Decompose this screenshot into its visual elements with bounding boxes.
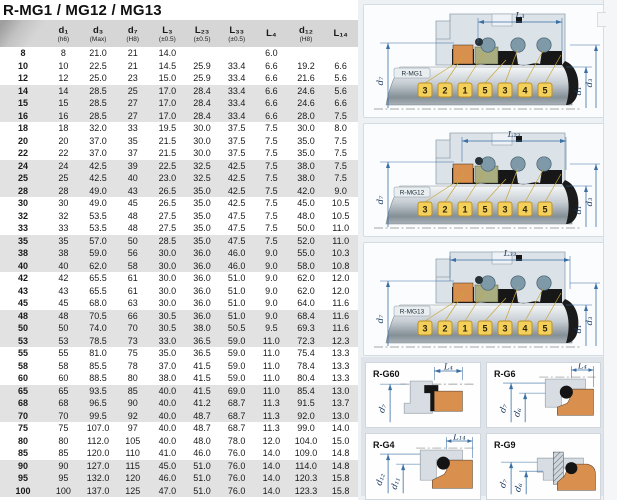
dim-value-cell: 120.0 bbox=[81, 447, 116, 460]
svg-text:d₇: d₇ bbox=[376, 76, 386, 85]
row-size-cell: 28 bbox=[0, 185, 46, 198]
catalog-page: R-MG1 / MG12 / MG13 d₁(h6)d₃(Max)d₇(H8)L… bbox=[0, 0, 617, 500]
dim-value-cell: 43 bbox=[46, 285, 81, 298]
dim-value-cell: 7.5 bbox=[323, 110, 358, 123]
svg-text:2: 2 bbox=[442, 86, 447, 96]
dim-value-cell: 30.0 bbox=[150, 247, 185, 260]
dim-value-cell: 7.5 bbox=[254, 185, 289, 198]
svg-text:L₄: L₄ bbox=[443, 363, 454, 373]
dim-value-cell: 40.0 bbox=[150, 385, 185, 398]
dim-value-cell: 38.0 bbox=[289, 160, 324, 173]
dim-value-cell: 62.0 bbox=[289, 285, 324, 298]
dim-value-cell: 17.0 bbox=[150, 110, 185, 123]
dim-value-cell: 11.0 bbox=[254, 385, 289, 398]
dim-value-cell: 33.4 bbox=[219, 110, 254, 123]
svg-text:d₇: d₇ bbox=[498, 478, 510, 490]
dim-value-cell: 47.5 bbox=[219, 222, 254, 235]
dim-value-cell: 68.4 bbox=[289, 310, 324, 323]
svg-text:5: 5 bbox=[482, 205, 487, 215]
seat-drawing-rg4: R-G4 L₁₄ bbox=[366, 434, 480, 498]
dim-value-cell: 51.0 bbox=[185, 472, 220, 485]
table-row: 353557.05028.535.047.57.552.011.0 bbox=[0, 235, 358, 248]
table-row: 323253.54827.535.047.57.548.010.5 bbox=[0, 210, 358, 223]
callout-badge: 5 bbox=[478, 83, 492, 97]
dim-value-cell: 30.0 bbox=[150, 285, 185, 298]
table-row: 424265.56130.036.051.09.062.012.0 bbox=[0, 272, 358, 285]
dim-value-cell: 80 bbox=[46, 435, 81, 448]
table-row: 100100137.012547.051.076.014.0123.315.8 bbox=[0, 485, 358, 498]
svg-text:4: 4 bbox=[522, 205, 527, 215]
dim-value-cell: 21.5 bbox=[150, 147, 185, 160]
model-label: R-MG13 bbox=[400, 309, 425, 316]
dim-value-cell: 10.8 bbox=[323, 260, 358, 273]
dim-value-cell: 26.5 bbox=[150, 197, 185, 210]
dim-value-cell: 26.5 bbox=[150, 185, 185, 198]
dim-value-cell: 33.4 bbox=[219, 97, 254, 110]
table-row: 242442.53922.532.542.57.538.07.5 bbox=[0, 160, 358, 173]
dim-value-cell: 47.5 bbox=[219, 235, 254, 248]
callout-badge: 1 bbox=[458, 321, 472, 335]
dim-value-cell: 57.0 bbox=[81, 235, 116, 248]
svg-text:L₁₄: L₁₄ bbox=[452, 434, 466, 443]
callout-badge: 5 bbox=[538, 321, 552, 335]
row-size-cell: 15 bbox=[0, 97, 46, 110]
dim-value-cell: 27 bbox=[115, 110, 150, 123]
dim-value-cell: 28.5 bbox=[81, 85, 116, 98]
dim-value-cell: 33 bbox=[115, 122, 150, 135]
dim-value-cell: 36.5 bbox=[185, 347, 220, 360]
dim-value-cell: 53.5 bbox=[81, 222, 116, 235]
dim-value-cell: 78.4 bbox=[289, 360, 324, 373]
o-ring bbox=[565, 462, 577, 474]
spring-end bbox=[475, 157, 483, 165]
dim-value-cell: 51.0 bbox=[219, 285, 254, 298]
dim-value-cell: 72.3 bbox=[289, 335, 324, 348]
seal-diagram-r-mg13: R-MG13 L₃₃ d₇ d₁ bbox=[363, 242, 605, 356]
callout-badge: 5 bbox=[538, 202, 552, 216]
dim-value-cell: 74.0 bbox=[81, 322, 116, 335]
dim-value-cell: 85 bbox=[115, 385, 150, 398]
dim-value-cell: 25 bbox=[46, 172, 81, 185]
svg-text:5: 5 bbox=[542, 205, 547, 215]
dim-value-cell: 6.6 bbox=[254, 72, 289, 85]
dimension-table: d₁(h6)d₃(Max)d₇(H8)L₃(±0.5)L₂₃(±0.5)L₃₃(… bbox=[0, 20, 358, 497]
dim-value-cell: 58 bbox=[46, 360, 81, 373]
dim-value-cell: 52.0 bbox=[289, 235, 324, 248]
callout-badge: 4 bbox=[518, 321, 532, 335]
dim-value-cell: 64.0 bbox=[289, 297, 324, 310]
dim-value-cell: 35.0 bbox=[289, 135, 324, 148]
seat-label: R-G6 bbox=[494, 369, 516, 379]
dim-value-cell: 48 bbox=[46, 310, 81, 323]
svg-text:d₁₂: d₁₂ bbox=[375, 472, 388, 487]
dim-value-cell: 37.0 bbox=[81, 135, 116, 148]
dim-value-cell: 9.0 bbox=[254, 247, 289, 260]
dim-value-cell: 36.5 bbox=[185, 335, 220, 348]
dim-value-cell: 7.5 bbox=[254, 197, 289, 210]
row-size-cell: 95 bbox=[0, 472, 46, 485]
dim-value-cell: 48 bbox=[115, 210, 150, 223]
dim-value-cell: 92.0 bbox=[289, 410, 324, 423]
seat-panel-rg9: R-G9 d₇ d₆ bbox=[486, 433, 602, 499]
dim-value-cell: 11.0 bbox=[323, 222, 358, 235]
dim-value-cell: 28.0 bbox=[289, 110, 324, 123]
dim-value-cell: 30.0 bbox=[185, 122, 220, 135]
dim-value-cell: 40 bbox=[115, 172, 150, 185]
dim-value-cell: 7.5 bbox=[254, 160, 289, 173]
callout-badge: 3 bbox=[498, 202, 512, 216]
dim-value-cell: 7.5 bbox=[254, 210, 289, 223]
row-size-cell: 35 bbox=[0, 235, 46, 248]
dim-value-cell: 7.5 bbox=[323, 172, 358, 185]
dim-value-cell: 41.2 bbox=[185, 397, 220, 410]
dim-value-cell: 37 bbox=[115, 147, 150, 160]
seal-face-carbon bbox=[453, 45, 473, 64]
dim-value-cell: 18 bbox=[46, 122, 81, 135]
table-row: 656593.58540.041.569.011.085.413.0 bbox=[0, 385, 358, 398]
dim-value-cell: 9.0 bbox=[323, 185, 358, 198]
table-row: 121225.02315.025.933.46.621.65.6 bbox=[0, 72, 358, 85]
dim-value-cell: 90 bbox=[46, 460, 81, 473]
callout-badge: 3 bbox=[418, 83, 432, 97]
dim-value-cell: 23 bbox=[115, 72, 150, 85]
dim-value-cell: 11.0 bbox=[323, 235, 358, 248]
dim-value-cell: 51.0 bbox=[185, 485, 220, 498]
dim-value-cell: 28.4 bbox=[185, 97, 220, 110]
dim-value-cell: 59.0 bbox=[219, 360, 254, 373]
row-size-cell: 16 bbox=[0, 110, 46, 123]
dim-value-cell: 25.9 bbox=[185, 72, 220, 85]
svg-text:d₁₁: d₁₁ bbox=[390, 476, 403, 491]
dim-value-cell: 11.6 bbox=[323, 310, 358, 323]
dim-value-cell: 33.4 bbox=[219, 72, 254, 85]
dim-value-cell: 36.0 bbox=[185, 247, 220, 260]
dim-value-cell: 15 bbox=[46, 97, 81, 110]
dim-value-cell: 5.6 bbox=[323, 72, 358, 85]
dim-value-cell: 15.8 bbox=[323, 485, 358, 498]
header-cell: L₁₄ bbox=[323, 20, 358, 47]
dim-value-cell: 14 bbox=[46, 85, 81, 98]
dim-value-cell: 32.0 bbox=[81, 122, 116, 135]
dim-value-cell: 114.0 bbox=[289, 460, 324, 473]
svg-text:d₃: d₃ bbox=[585, 197, 595, 206]
dim-value-cell: 35.0 bbox=[185, 197, 220, 210]
dim-value-cell: 24 bbox=[46, 160, 81, 173]
header-cell: L₄ bbox=[254, 20, 289, 47]
dim-value-cell: 30.0 bbox=[289, 122, 324, 135]
row-size-cell: 80 bbox=[0, 435, 46, 448]
dim-value-cell: 6.6 bbox=[254, 97, 289, 110]
dim-value-cell: 33.4 bbox=[219, 85, 254, 98]
dim-value-cell: 125 bbox=[115, 485, 150, 498]
spring-coil bbox=[511, 276, 525, 290]
dim-d11: d₁₁ bbox=[390, 464, 421, 493]
table-row: 555581.07535.036.559.011.075.413.3 bbox=[0, 347, 358, 360]
table-row: 8080112.010540.048.078.012.0104.015.0 bbox=[0, 435, 358, 448]
dim-value-cell: 38 bbox=[46, 247, 81, 260]
table-row: 585885.57837.041.559.011.078.413.3 bbox=[0, 360, 358, 373]
dim-value-cell: 14.0 bbox=[150, 47, 185, 60]
row-size-cell: 85 bbox=[0, 447, 46, 460]
dim-value-cell: 14.8 bbox=[323, 460, 358, 473]
model-label: R-MG12 bbox=[400, 190, 425, 197]
dim-value-cell: 39 bbox=[115, 160, 150, 173]
dim-value-cell: 68.0 bbox=[81, 297, 116, 310]
dim-value-cell: 42.0 bbox=[289, 185, 324, 198]
dim-value-cell: 17.0 bbox=[150, 97, 185, 110]
dim-value-cell: 20 bbox=[46, 135, 81, 148]
svg-text:5: 5 bbox=[542, 324, 547, 334]
dim-value-cell: 47.0 bbox=[150, 485, 185, 498]
dim-value-cell: 30.0 bbox=[185, 147, 220, 160]
row-size-cell: 30 bbox=[0, 197, 46, 210]
dim-value-cell: 35.0 bbox=[289, 147, 324, 160]
model-label: R-MG1 bbox=[402, 71, 423, 78]
dim-value-cell: 42.5 bbox=[219, 185, 254, 198]
dim-value-cell: 6.6 bbox=[254, 60, 289, 73]
table-row: 222237.03721.530.037.57.535.07.5 bbox=[0, 147, 358, 160]
dim-value-cell: 7.5 bbox=[254, 135, 289, 148]
seal-face-carbon bbox=[453, 283, 473, 302]
dim-value-cell: 46.0 bbox=[219, 247, 254, 260]
dim-value-cell: 50.5 bbox=[219, 322, 254, 335]
dim-value-cell: 92 bbox=[115, 410, 150, 423]
dim-value-cell: 28.4 bbox=[185, 110, 220, 123]
dim-value-cell: 53.5 bbox=[81, 210, 116, 223]
spring-end bbox=[475, 276, 483, 284]
dim-value-cell: 24.6 bbox=[289, 97, 324, 110]
dim-value-cell: 120.3 bbox=[289, 472, 324, 485]
dim-value-cell: 22.5 bbox=[81, 60, 116, 73]
dim-value-cell: 36.0 bbox=[185, 297, 220, 310]
svg-text:d₇: d₇ bbox=[376, 195, 386, 204]
dim-value-cell: 42.5 bbox=[219, 197, 254, 210]
seat-variants-grid: R-G60 L₄ bbox=[361, 357, 605, 496]
dim-value-cell: 30.0 bbox=[150, 272, 185, 285]
dim-value-cell: 30.5 bbox=[150, 310, 185, 323]
dim-value-cell: 55 bbox=[46, 347, 81, 360]
dim-value-cell: 7.5 bbox=[254, 122, 289, 135]
header-cell: d₃(Max) bbox=[81, 20, 116, 47]
dim-value-cell: 19.2 bbox=[289, 60, 324, 73]
dim-value-cell: 13.7 bbox=[323, 397, 358, 410]
dim-value-cell: 10 bbox=[46, 60, 81, 73]
dim-value-cell: 81.0 bbox=[81, 347, 116, 360]
spring-coil bbox=[511, 157, 525, 171]
dim-value-cell: 112.0 bbox=[81, 435, 116, 448]
dim-value-cell: 127.0 bbox=[81, 460, 116, 473]
row-size-cell: 68 bbox=[0, 397, 46, 410]
dim-value-cell: 100 bbox=[46, 485, 81, 498]
dim-value-cell: 25.9 bbox=[185, 60, 220, 73]
svg-text:L₄: L₄ bbox=[576, 363, 587, 372]
table-row: 8821.02114.06.0 bbox=[0, 47, 358, 60]
dim-value-cell: 10.5 bbox=[323, 210, 358, 223]
dim-value-cell: 63 bbox=[115, 297, 150, 310]
header-corner-cell bbox=[0, 20, 46, 47]
dim-value-cell: 30.0 bbox=[150, 260, 185, 273]
row-size-cell: 48 bbox=[0, 310, 46, 323]
dim-value-cell: 120 bbox=[115, 472, 150, 485]
dim-value-cell: 41.5 bbox=[185, 360, 220, 373]
dim-value-cell: 40.0 bbox=[150, 410, 185, 423]
dim-value-cell: 76.0 bbox=[219, 472, 254, 485]
dim-value-cell: 48 bbox=[115, 222, 150, 235]
row-size-cell: 43 bbox=[0, 285, 46, 298]
dim-value-cell: 24.6 bbox=[289, 85, 324, 98]
dim-value-cell: 12.0 bbox=[323, 272, 358, 285]
dim-value-cell: 37.0 bbox=[81, 147, 116, 160]
dim-value-cell: 6.6 bbox=[323, 97, 358, 110]
dim-value-cell: 46.0 bbox=[219, 260, 254, 273]
dim-value-cell: 7.5 bbox=[254, 222, 289, 235]
dim-value-cell: 42.5 bbox=[81, 160, 116, 173]
dim-value-cell: 60 bbox=[46, 372, 81, 385]
dim-value-cell: 40 bbox=[46, 260, 81, 273]
dim-value-cell: 5.6 bbox=[323, 85, 358, 98]
table-row: 383859.05630.036.046.09.055.010.3 bbox=[0, 247, 358, 260]
dim-value-cell: 27.5 bbox=[150, 222, 185, 235]
svg-text:1: 1 bbox=[462, 205, 467, 215]
table-row: 181832.03319.530.037.57.530.08.0 bbox=[0, 122, 358, 135]
row-size-cell: 45 bbox=[0, 297, 46, 310]
dim-value-cell: 42.5 bbox=[81, 172, 116, 185]
dim-value-cell: 59.0 bbox=[219, 335, 254, 348]
dim-value-cell: 42 bbox=[46, 272, 81, 285]
dim-value-cell: 76.0 bbox=[219, 460, 254, 473]
spring-coil bbox=[537, 276, 551, 290]
spring-coil bbox=[481, 276, 495, 290]
dim-value-cell: 10.3 bbox=[323, 247, 358, 260]
callout-badge: 5 bbox=[478, 321, 492, 335]
dim-value-cell: 35 bbox=[46, 235, 81, 248]
row-size-cell: 60 bbox=[0, 372, 46, 385]
dim-value-cell: 40.0 bbox=[150, 422, 185, 435]
callout-badge: 3 bbox=[498, 83, 512, 97]
dim-value-cell: 35 bbox=[115, 135, 150, 148]
row-size-cell: 40 bbox=[0, 260, 46, 273]
dim-value-cell: 14.0 bbox=[254, 447, 289, 460]
table-row: 404062.05830.036.046.09.058.010.8 bbox=[0, 260, 358, 273]
header-row: d₁(h6)d₃(Max)d₇(H8)L₃(±0.5)L₂₃(±0.5)L₃₃(… bbox=[0, 20, 358, 47]
dim-value-cell: 132.0 bbox=[81, 472, 116, 485]
dim-value-cell: 105 bbox=[115, 435, 150, 448]
dim-value-cell: 13.0 bbox=[323, 410, 358, 423]
dim-value-cell: 15.0 bbox=[323, 435, 358, 448]
row-size-cell: 12 bbox=[0, 72, 46, 85]
dimension-table-body: 8821.02114.06.0101022.52114.525.933.46.6… bbox=[0, 47, 358, 497]
dim-value-cell: 28.5 bbox=[81, 97, 116, 110]
dim-value-cell: 40.0 bbox=[150, 435, 185, 448]
dim-value-cell: 25.0 bbox=[81, 72, 116, 85]
row-size-cell: 75 bbox=[0, 422, 46, 435]
dim-d7: d₇ bbox=[377, 384, 406, 422]
seat-drawing-rg9: R-G9 d₇ d₆ bbox=[487, 434, 601, 498]
dim-value-cell: 21.6 bbox=[289, 72, 324, 85]
dim-value-cell: 56 bbox=[115, 247, 150, 260]
row-size-cell: 38 bbox=[0, 247, 46, 260]
dim-value-cell: 69.3 bbox=[289, 322, 324, 335]
dim-value-cell: 11.0 bbox=[254, 360, 289, 373]
dim-value-cell: 21.5 bbox=[150, 135, 185, 148]
dim-value-cell: 10.5 bbox=[323, 197, 358, 210]
dim-value-cell: 75 bbox=[46, 422, 81, 435]
dim-value-cell: 21 bbox=[115, 60, 150, 73]
dim-value-cell: 50 bbox=[115, 235, 150, 248]
dim-value-cell: 69.0 bbox=[219, 385, 254, 398]
dim-value-cell: 11.3 bbox=[254, 397, 289, 410]
dim-value-cell: 68.7 bbox=[219, 397, 254, 410]
seal-diagrams: R-MG1 L₃ d₇ d₁ bbox=[363, 4, 605, 356]
dim-value-cell: 61 bbox=[115, 285, 150, 298]
dim-value-cell: 115 bbox=[115, 460, 150, 473]
dim-value-cell: 65 bbox=[46, 385, 81, 398]
callout-badge: 3 bbox=[418, 202, 432, 216]
dim-value-cell: 61 bbox=[115, 272, 150, 285]
dim-value-cell: 85 bbox=[46, 447, 81, 460]
table-row: 303049.04526.535.042.57.545.010.5 bbox=[0, 197, 358, 210]
dim-value-cell: 6.6 bbox=[254, 110, 289, 123]
row-size-cell: 20 bbox=[0, 135, 46, 148]
svg-text:3: 3 bbox=[422, 324, 427, 334]
row-size-cell: 100 bbox=[0, 485, 46, 498]
dim-value-cell: 7.5 bbox=[254, 235, 289, 248]
dim-value-cell: 70 bbox=[115, 322, 150, 335]
dim-value-cell: 43 bbox=[115, 185, 150, 198]
row-size-cell: 32 bbox=[0, 210, 46, 223]
dim-value-cell: 13.0 bbox=[323, 385, 358, 398]
dim-value-cell: 45.0 bbox=[289, 197, 324, 210]
dim-value-cell: 62.0 bbox=[289, 272, 324, 285]
seat-panel-rg6: R-G6 L₄ bbox=[486, 362, 602, 428]
dim-value-cell: 6.0 bbox=[254, 47, 289, 60]
dim-value-cell: 91.5 bbox=[289, 397, 324, 410]
row-size-cell: 18 bbox=[0, 122, 46, 135]
dim-value-cell: 51.0 bbox=[219, 272, 254, 285]
dim-value-cell: 50 bbox=[46, 322, 81, 335]
callouts: 3 2 1 5 3 4 5 bbox=[418, 83, 552, 97]
table-header: d₁(h6)d₃(Max)d₇(H8)L₃(±0.5)L₂₃(±0.5)L₃₃(… bbox=[0, 20, 358, 47]
dim-value-cell: 12.3 bbox=[323, 335, 358, 348]
dim-value-cell: 110 bbox=[115, 447, 150, 460]
callout-badge: 2 bbox=[438, 321, 452, 335]
svg-text:d₁: d₁ bbox=[574, 325, 584, 334]
page-edge-decoration bbox=[603, 0, 617, 500]
dim-value-cell: 70.5 bbox=[81, 310, 116, 323]
dim-value-cell: 66 bbox=[115, 310, 150, 323]
row-size-cell: 10 bbox=[0, 60, 46, 73]
row-size-cell: 8 bbox=[0, 47, 46, 60]
dim-value-cell: 80 bbox=[115, 372, 150, 385]
spring-coil bbox=[511, 38, 525, 52]
dim-value-cell: 28.4 bbox=[185, 85, 220, 98]
dim-value-cell: 30.5 bbox=[150, 322, 185, 335]
callouts: 3 2 1 5 3 4 5 bbox=[418, 321, 552, 335]
dim-value-cell: 14.0 bbox=[323, 422, 358, 435]
dim-value-cell: 7.5 bbox=[323, 160, 358, 173]
dim-value-cell: 9.5 bbox=[254, 322, 289, 335]
dim-value-cell: 13.3 bbox=[323, 372, 358, 385]
dim-value-cell: 48.0 bbox=[185, 435, 220, 448]
dim-value-cell: 42.5 bbox=[219, 172, 254, 185]
table-row: 252542.54023.032.542.57.538.07.5 bbox=[0, 172, 358, 185]
dim-value-cell: 51.0 bbox=[219, 310, 254, 323]
dim-value-cell: 137.0 bbox=[81, 485, 116, 498]
dim-value-cell: 11.6 bbox=[323, 297, 358, 310]
seat-label: R-G4 bbox=[373, 440, 395, 450]
dim-value-cell: 7.5 bbox=[254, 147, 289, 160]
header-cell: d₁(h6) bbox=[46, 20, 81, 47]
